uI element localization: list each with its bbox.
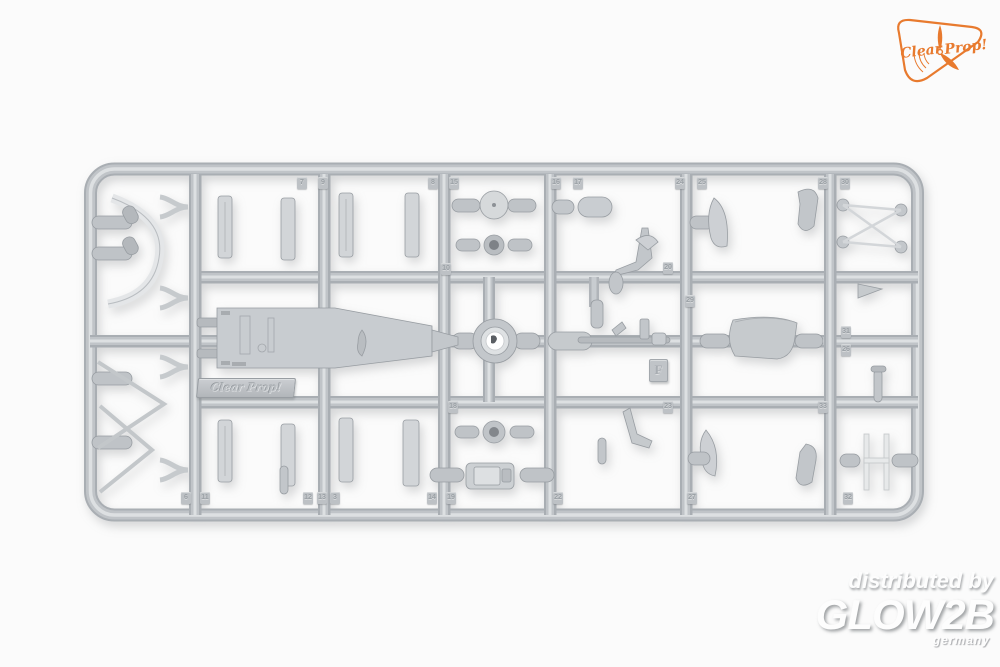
gate-number-tag: 26 bbox=[841, 344, 851, 356]
gate-number-tag: 25 bbox=[697, 177, 707, 189]
gate-number-tag: 22 bbox=[553, 492, 563, 504]
part-cowling-ring bbox=[452, 319, 540, 363]
part-cylinders bbox=[552, 197, 612, 217]
gate-number-tag: 29 bbox=[685, 295, 695, 307]
gate-number-tag: 14 bbox=[427, 492, 437, 504]
part-h-frame bbox=[840, 434, 918, 490]
gate-number-tag: 23 bbox=[663, 401, 673, 413]
part-machine-gun bbox=[578, 300, 670, 345]
gate-number-tag: 8 bbox=[428, 177, 438, 189]
gate-number-tag: 7 bbox=[297, 177, 307, 189]
product-photo: 7981516172425283010202931261823336111213… bbox=[0, 0, 1000, 667]
gate-number-tag: 30 bbox=[840, 177, 850, 189]
gate-number-tag: 19 bbox=[446, 492, 456, 504]
gate-number-tag: 11 bbox=[200, 492, 210, 504]
gate-number-tag: 17 bbox=[573, 177, 583, 189]
distributor-watermark: distributed by GLOW2B germany bbox=[816, 570, 994, 646]
part-discs-top bbox=[452, 191, 536, 255]
gate-number-tag: 18 bbox=[448, 401, 458, 413]
logo-word-clear: Clear bbox=[900, 41, 945, 62]
gate-number-tag: 13 bbox=[317, 492, 327, 504]
logo-word-prop: Prop! bbox=[943, 37, 989, 58]
gate-number-tag: 24 bbox=[675, 177, 685, 189]
part-seat bbox=[700, 317, 823, 359]
gate-number-tag: 31 bbox=[841, 326, 851, 338]
part-exhaust-pipes bbox=[92, 204, 140, 449]
part-cockpit-floor bbox=[197, 308, 458, 368]
gate-number-tag: 33 bbox=[818, 401, 828, 413]
gate-number-tag: 28 bbox=[818, 177, 828, 189]
gate-number-tag: 9 bbox=[318, 177, 328, 189]
sprue-letter-tag: F bbox=[649, 359, 668, 382]
watermark-glow2b: GLOW2B bbox=[816, 594, 994, 636]
gate-number-tag: 15 bbox=[449, 177, 459, 189]
part-bent-intake bbox=[798, 189, 818, 230]
gate-number-tag: 27 bbox=[687, 492, 697, 504]
part-tail-skids bbox=[598, 408, 816, 485]
gate-number-tag: 3 bbox=[330, 492, 340, 504]
gate-number-tag: 12 bbox=[303, 492, 313, 504]
clear-prop-logo: Clear Prop! bbox=[885, 12, 993, 92]
part-curved-blade bbox=[690, 198, 727, 247]
gate-number-tag: 16 bbox=[551, 177, 561, 189]
watermark-distributed-by: distributed by bbox=[816, 570, 994, 592]
gate-number-tag: 20 bbox=[663, 262, 673, 274]
gate-number-tag: 10 bbox=[441, 263, 451, 275]
gate-number-tag: 32 bbox=[843, 492, 853, 504]
sprue-brand-nameplate: Clear Prop! bbox=[196, 378, 296, 398]
part-small-assembly bbox=[609, 228, 658, 294]
gate-number-tag: 6 bbox=[181, 492, 191, 504]
part-x-brace bbox=[837, 199, 907, 253]
